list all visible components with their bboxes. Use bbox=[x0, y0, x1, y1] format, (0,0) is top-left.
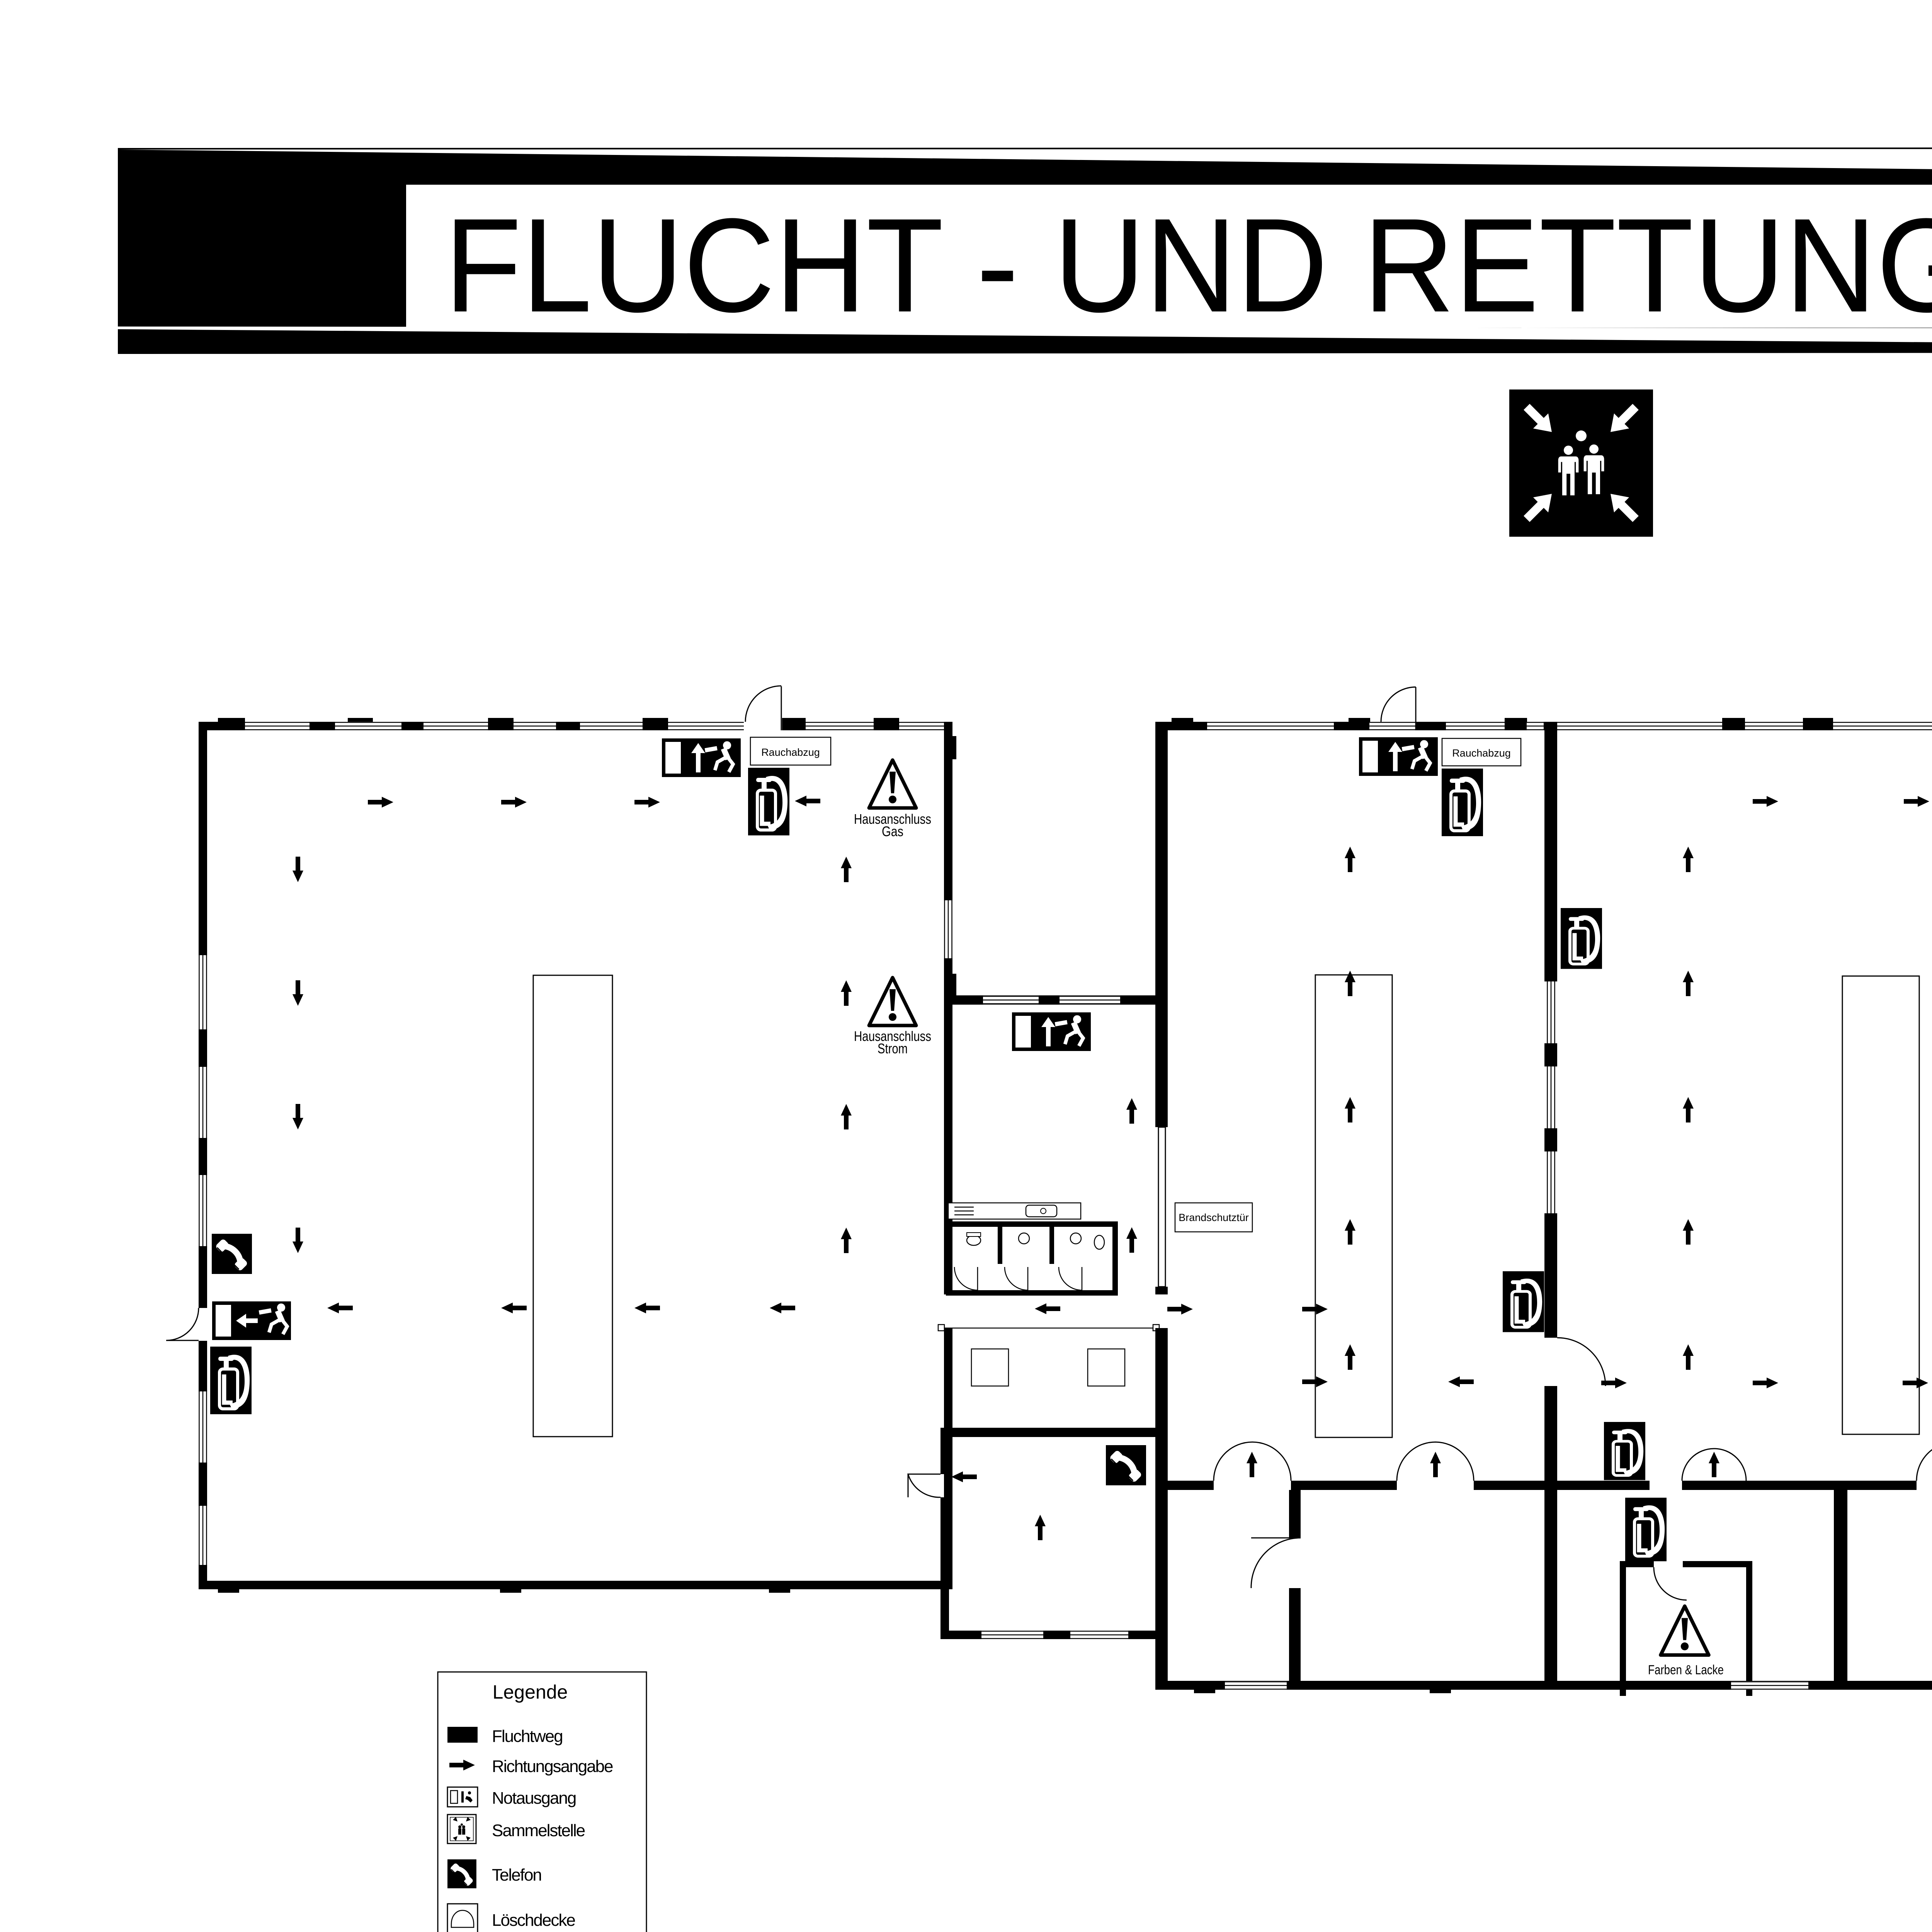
svg-text:Sammelstelle: Sammelstelle bbox=[492, 1821, 585, 1840]
svg-text:Löschdecke: Löschdecke bbox=[492, 1911, 575, 1930]
svg-text:Brandschutztür: Brandschutztür bbox=[1179, 1212, 1249, 1223]
svg-text:Strom: Strom bbox=[878, 1041, 908, 1056]
svg-text:Legende: Legende bbox=[493, 1681, 568, 1703]
svg-text:Fluchtweg: Fluchtweg bbox=[492, 1727, 563, 1746]
svg-text:Farben & Lacke: Farben & Lacke bbox=[1648, 1663, 1724, 1677]
svg-text:Richtungsangabe: Richtungsangabe bbox=[492, 1757, 613, 1776]
svg-text:FLUCHT - UND RETTUNGSPLAN: FLUCHT - UND RETTUNGSPLAN bbox=[444, 191, 1932, 340]
svg-text:Rauchabzug: Rauchabzug bbox=[1452, 747, 1511, 759]
svg-text:Notausgang: Notausgang bbox=[492, 1789, 576, 1808]
svg-text:Rauchabzug: Rauchabzug bbox=[761, 747, 820, 758]
svg-text:Gas: Gas bbox=[882, 823, 903, 839]
svg-text:Telefon: Telefon bbox=[492, 1866, 541, 1884]
